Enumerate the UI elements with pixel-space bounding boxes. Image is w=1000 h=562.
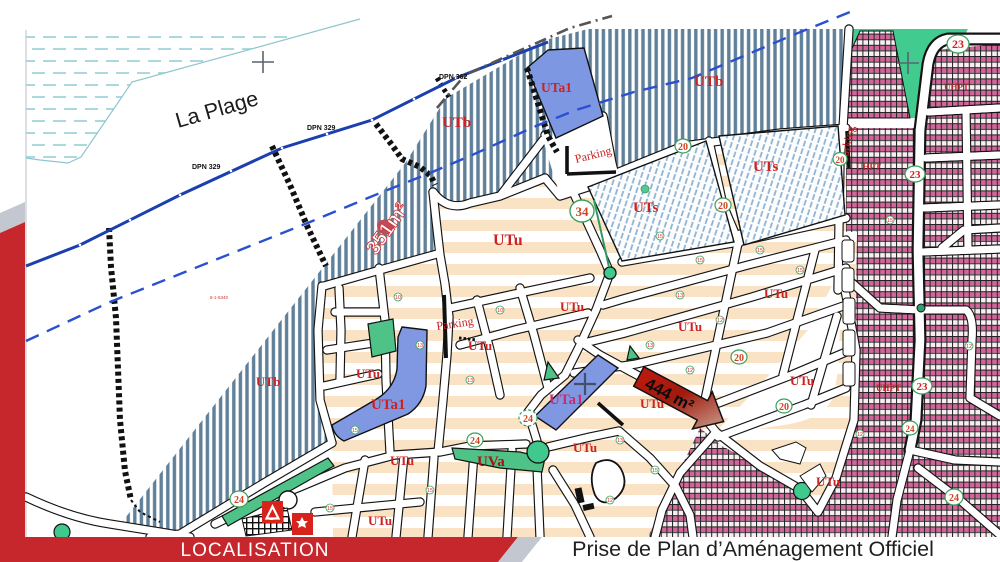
svg-text:DPN 329: DPN 329 <box>192 164 221 171</box>
svg-text:UTu: UTu <box>356 366 380 381</box>
svg-text:UTs: UTs <box>753 159 778 175</box>
svg-text:UTs: UTs <box>633 200 658 216</box>
svg-text:15: 15 <box>797 268 803 274</box>
svg-text:UTa1: UTa1 <box>371 397 405 413</box>
svg-text:15: 15 <box>427 488 433 494</box>
svg-text:12: 12 <box>717 318 723 324</box>
svg-text:UTu: UTu <box>390 453 414 468</box>
svg-text:20: 20 <box>718 201 728 212</box>
svg-text:8-1-5340: 8-1-5340 <box>210 295 229 300</box>
svg-text:23: 23 <box>910 169 922 181</box>
svg-text:UTa1: UTa1 <box>541 80 572 95</box>
svg-text:13: 13 <box>467 378 473 384</box>
svg-text:UTu: UTu <box>493 232 523 249</box>
svg-text:15: 15 <box>887 218 893 224</box>
svg-text:23: 23 <box>952 37 964 51</box>
svg-text:15: 15 <box>697 258 703 264</box>
svg-text:12: 12 <box>607 498 613 504</box>
svg-text:UTu: UTu <box>764 286 788 301</box>
svg-text:UVa: UVa <box>477 454 505 470</box>
svg-text:UTu: UTu <box>678 319 702 334</box>
svg-text:24: 24 <box>470 436 480 447</box>
svg-text:13: 13 <box>417 343 423 349</box>
svg-text:LOCALISATION: LOCALISATION <box>181 540 330 561</box>
svg-text:20: 20 <box>779 402 789 413</box>
svg-text:DPN 362: DPN 362 <box>439 74 468 81</box>
svg-text:UTb: UTb <box>256 375 280 389</box>
svg-text:UTu: UTu <box>468 338 492 353</box>
svg-text:23: 23 <box>917 381 929 393</box>
svg-text:12: 12 <box>966 344 972 350</box>
svg-text:UTa1: UTa1 <box>549 392 583 408</box>
svg-text:24: 24 <box>906 424 916 434</box>
svg-text:15: 15 <box>327 506 333 512</box>
svg-text:DPN 329: DPN 329 <box>307 125 336 132</box>
svg-text:13: 13 <box>677 293 683 299</box>
svg-text:15: 15 <box>757 248 763 254</box>
svg-text:24: 24 <box>234 495 244 506</box>
svg-text:UHPT: UHPT <box>856 162 881 172</box>
svg-text:UTu: UTu <box>816 474 840 489</box>
svg-text:UHPT: UHPT <box>876 383 901 393</box>
svg-text:15: 15 <box>657 234 663 240</box>
svg-text:15: 15 <box>352 428 358 434</box>
svg-text:10: 10 <box>497 308 503 314</box>
svg-text:15: 15 <box>652 468 658 474</box>
svg-text:12: 12 <box>687 368 693 374</box>
svg-text:UTb: UTb <box>442 115 471 131</box>
svg-text:12: 12 <box>857 432 863 438</box>
svg-text:10: 10 <box>395 295 401 301</box>
svg-text:Prise de Plan d’Aménagement Of: Prise de Plan d’Aménagement Officiel <box>572 537 934 561</box>
svg-text:UTu: UTu <box>560 299 584 314</box>
svg-text:20: 20 <box>678 142 688 153</box>
svg-text:20: 20 <box>836 155 846 165</box>
svg-text:UTb: UTb <box>694 74 723 90</box>
svg-text:34: 34 <box>576 204 590 219</box>
svg-text:UHPT: UHPT <box>944 82 969 92</box>
svg-text:24: 24 <box>523 414 533 425</box>
svg-text:20: 20 <box>734 353 744 364</box>
svg-text:13: 13 <box>647 343 653 349</box>
svg-text:UTu: UTu <box>573 440 597 455</box>
svg-text:24: 24 <box>949 493 959 504</box>
svg-text:13: 13 <box>617 438 623 444</box>
svg-text:UTu: UTu <box>790 373 814 388</box>
svg-text:UTu: UTu <box>368 513 392 528</box>
